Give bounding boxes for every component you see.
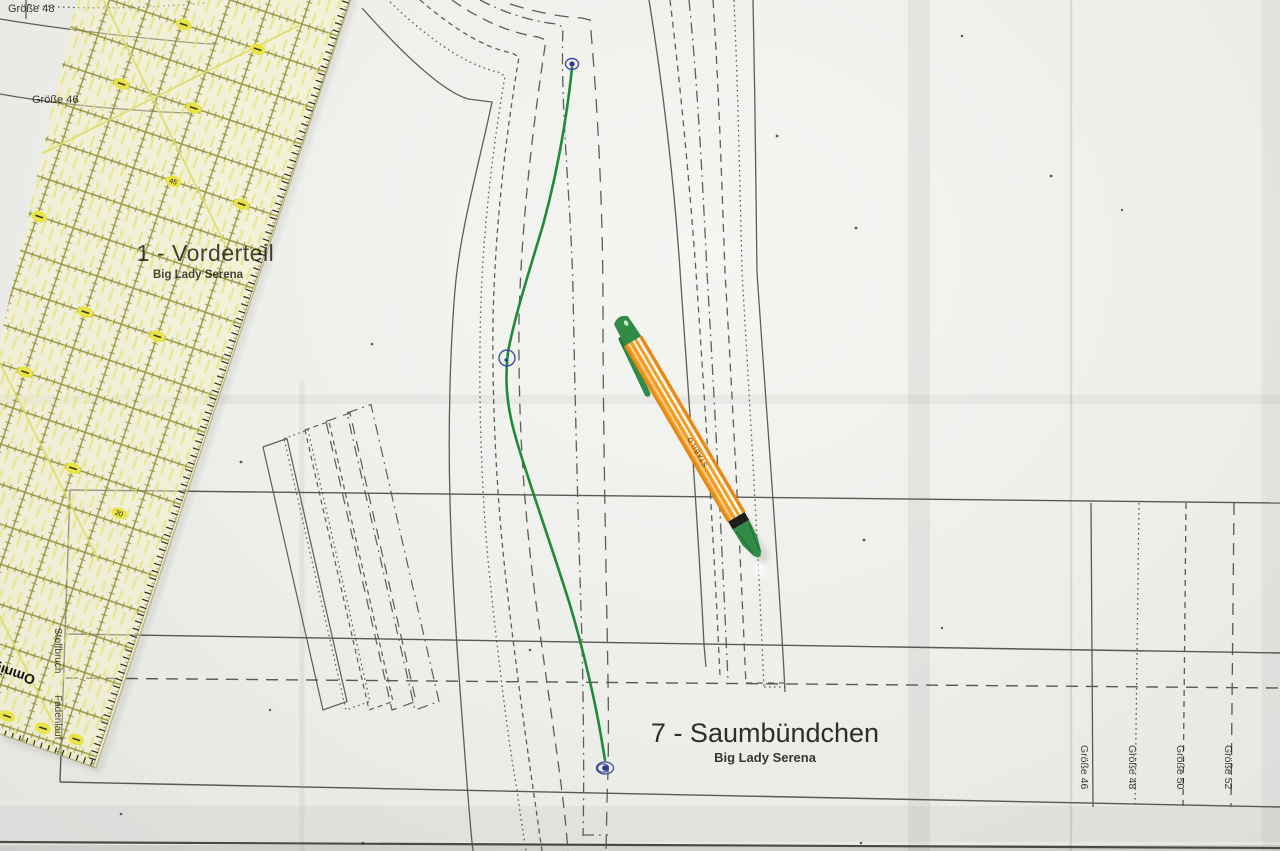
front-piece-subtitle: Big Lady Serena (118, 269, 278, 281)
strip-piece-outlines (263, 405, 439, 711)
front-piece-title: 1 - Vorderteil (118, 240, 293, 267)
fold-line-label: Stoffbruch (52, 628, 63, 673)
grain-line-label: Fadenlauf (52, 695, 63, 739)
side-piece-outlines (649, 0, 786, 692)
front-piece-outlines (362, 0, 608, 851)
size-label-50: Größe 50 (1174, 745, 1186, 789)
hem-piece-outlines (0, 490, 1280, 848)
hand-drawn-line (506, 68, 605, 760)
size-label-46: Größe 46 (1078, 745, 1090, 789)
label-groesse-46: Größe 46 (32, 94, 78, 106)
pen-barrel: STABILO (624, 336, 745, 523)
hand-drawn-annotation (499, 59, 614, 775)
hem-piece-subtitle: Big Lady Serena (640, 750, 890, 765)
size-label-52: Größe 52 (1222, 745, 1234, 789)
size-line-46 (1091, 503, 1093, 807)
felt-tip-pen: STABILO (604, 312, 779, 583)
size-label-48: Größe 48 (1126, 745, 1138, 789)
label-groesse-48: Größe 48 (8, 3, 54, 15)
hem-piece-title: 7 - Saumbündchen (640, 718, 890, 749)
size-gradient-lines (1091, 503, 1234, 807)
photo-sewing-pattern: 45 20 (0, 0, 1280, 851)
marker-dot-bottom (597, 762, 614, 774)
